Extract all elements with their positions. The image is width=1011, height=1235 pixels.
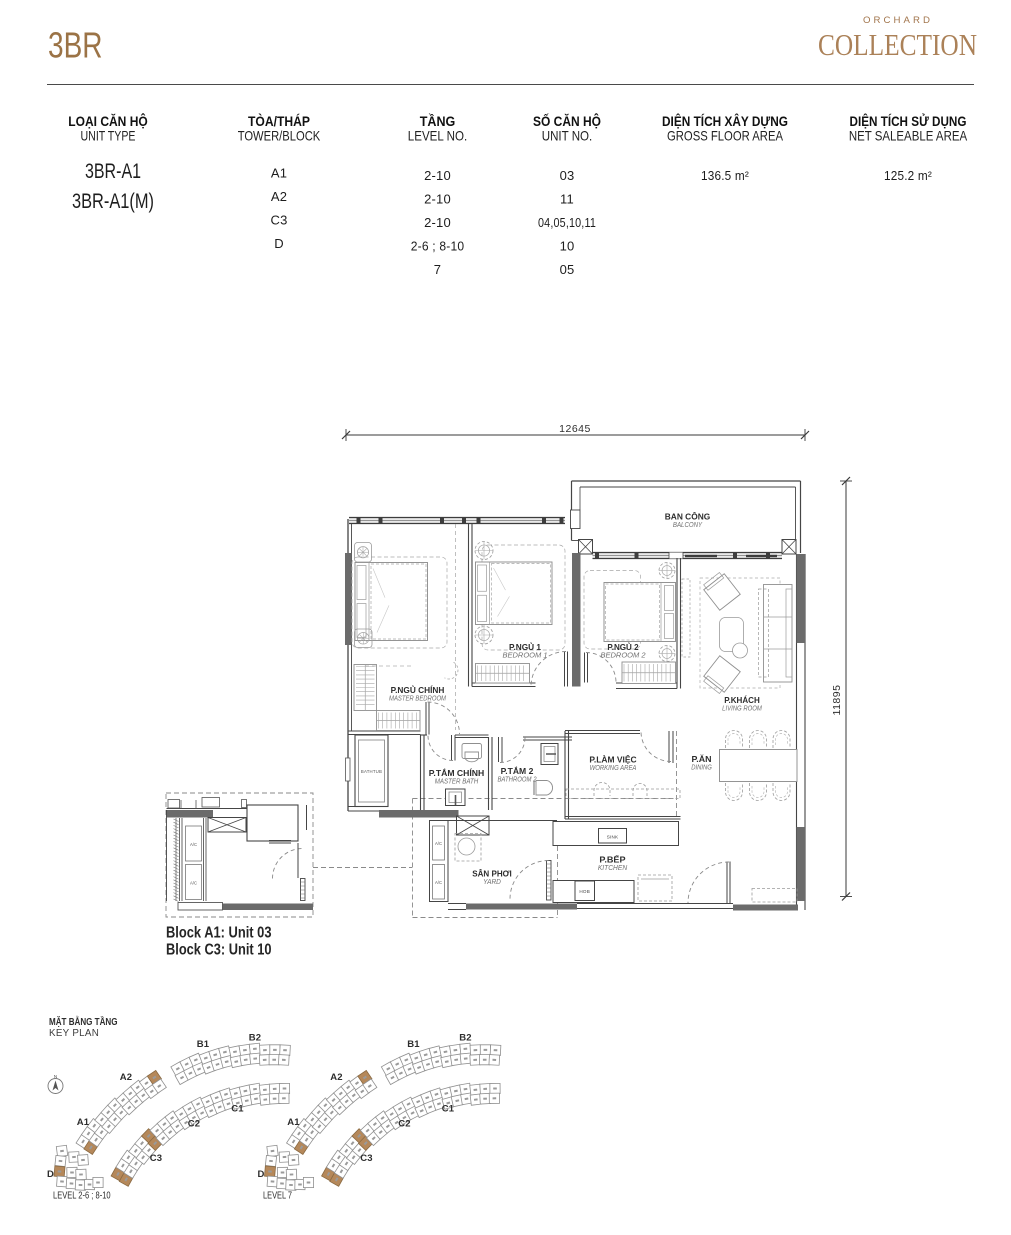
svg-text:2-10: 2-10 <box>424 192 451 207</box>
svg-text:COLLECTION: COLLECTION <box>818 28 977 62</box>
svg-text:Block C3: Unit 10: Block C3: Unit 10 <box>166 942 272 959</box>
svg-text:2-6 ; 8-10: 2-6 ; 8-10 <box>411 239 465 254</box>
svg-text:C3: C3 <box>360 1153 373 1164</box>
svg-text:BAN CÔNG: BAN CÔNG <box>665 511 711 522</box>
svg-text:SÂN PHƠI: SÂN PHƠI <box>472 868 512 879</box>
svg-text:SINK: SINK <box>607 835 619 840</box>
svg-text:KITCHEN: KITCHEN <box>598 865 627 872</box>
svg-text:B2: B2 <box>249 1033 262 1044</box>
svg-text:BATHROOM 2: BATHROOM 2 <box>497 777 536 784</box>
svg-text:11: 11 <box>560 192 574 207</box>
svg-text:C1: C1 <box>231 1104 244 1115</box>
svg-text:DIỆN TÍCH SỬ DỤNG: DIỆN TÍCH SỬ DỤNG <box>850 114 967 129</box>
svg-text:3BR-A1: 3BR-A1 <box>85 160 141 183</box>
svg-text:P.ĂN: P.ĂN <box>692 754 712 764</box>
svg-text:LEVEL 2-6 ; 8-10: LEVEL 2-6 ; 8-10 <box>53 1191 111 1202</box>
svg-text:YARD: YARD <box>483 879 501 886</box>
svg-text:A2: A2 <box>271 189 287 204</box>
svg-text:7: 7 <box>434 262 441 277</box>
svg-text:LEVEL NO.: LEVEL NO. <box>408 129 467 144</box>
svg-text:P.NGỦ CHÍNH: P.NGỦ CHÍNH <box>391 684 445 695</box>
svg-text:LOẠI CĂN HỘ: LOẠI CĂN HỘ <box>68 114 148 129</box>
svg-text:10: 10 <box>560 239 575 254</box>
svg-text:TẦNG: TẦNG <box>420 114 456 129</box>
svg-text:BATHTUB: BATHTUB <box>361 769 382 774</box>
svg-text:P.BẾP: P.BẾP <box>599 855 626 865</box>
svg-text:Block A1: Unit 03: Block A1: Unit 03 <box>166 925 272 942</box>
svg-text:DIỆN TÍCH XÂY DỰNG: DIỆN TÍCH XÂY DỰNG <box>662 114 788 129</box>
svg-text:P.NGỦ 2: P.NGỦ 2 <box>607 641 639 652</box>
svg-text:04,05,10,11: 04,05,10,11 <box>538 215 596 230</box>
svg-text:LEVEL 7: LEVEL 7 <box>263 1191 292 1202</box>
svg-text:C2: C2 <box>398 1119 411 1130</box>
svg-text:MASTER BATH: MASTER BATH <box>435 779 479 786</box>
svg-text:A2: A2 <box>120 1072 133 1083</box>
svg-text:C2: C2 <box>188 1119 201 1130</box>
svg-text:D: D <box>257 1169 264 1180</box>
svg-text:05: 05 <box>560 262 575 277</box>
svg-text:MẶT BẰNG TẦNG: MẶT BẰNG TẦNG <box>49 1017 118 1028</box>
svg-text:UNIT TYPE: UNIT TYPE <box>81 129 136 144</box>
svg-text:ORCHARD: ORCHARD <box>863 15 933 26</box>
svg-text:03: 03 <box>560 168 575 183</box>
svg-text:P.NGỦ 1: P.NGỦ 1 <box>509 641 541 652</box>
svg-text:A/C: A/C <box>435 880 442 885</box>
svg-text:GROSS FLOOR AREA: GROSS FLOOR AREA <box>667 129 784 144</box>
svg-text:NET SALEABLE AREA: NET SALEABLE AREA <box>849 129 968 144</box>
svg-text:A1: A1 <box>77 1117 90 1128</box>
svg-text:12645: 12645 <box>559 423 591 435</box>
svg-text:A/C: A/C <box>190 842 197 847</box>
svg-text:D: D <box>47 1169 54 1180</box>
svg-text:BEDROOM 1: BEDROOM 1 <box>503 653 548 660</box>
svg-text:LIVING ROOM: LIVING ROOM <box>722 706 762 713</box>
svg-text:BEDROOM 2: BEDROOM 2 <box>601 653 646 660</box>
svg-text:C3: C3 <box>270 213 287 228</box>
svg-text:BALCONY: BALCONY <box>673 522 703 529</box>
svg-text:N: N <box>54 1074 57 1079</box>
svg-text:DINING: DINING <box>691 765 712 772</box>
svg-text:A/C: A/C <box>435 841 442 846</box>
svg-text:3BR-A1(M): 3BR-A1(M) <box>72 190 154 213</box>
svg-text:P.TẮM CHÍNH: P.TẮM CHÍNH <box>429 767 484 778</box>
svg-text:P.LÀM VIỆC: P.LÀM VIỆC <box>589 754 636 765</box>
svg-text:WORKING AREA: WORKING AREA <box>590 765 637 772</box>
svg-text:A1: A1 <box>271 166 287 181</box>
svg-text:TÒA/THÁP: TÒA/THÁP <box>248 114 310 129</box>
svg-text:HOB: HOB <box>579 889 590 894</box>
svg-text:B1: B1 <box>197 1039 210 1050</box>
svg-text:3BR: 3BR <box>48 25 103 66</box>
svg-text:P.KHÁCH: P.KHÁCH <box>724 694 760 705</box>
svg-text:C3: C3 <box>150 1153 163 1164</box>
svg-text:P.TẮM 2: P.TẮM 2 <box>501 766 534 776</box>
svg-text:UNIT NO.: UNIT NO. <box>542 129 593 144</box>
svg-text:MASTER BEDROOM: MASTER BEDROOM <box>389 696 446 703</box>
svg-text:136.5 m²: 136.5 m² <box>701 168 749 183</box>
svg-text:TOWER/BLOCK: TOWER/BLOCK <box>238 129 321 144</box>
svg-text:A1: A1 <box>287 1117 300 1128</box>
svg-text:2-10: 2-10 <box>424 215 451 230</box>
svg-text:2-10: 2-10 <box>424 168 451 183</box>
svg-text:SỐ CĂN HỘ: SỐ CĂN HỘ <box>533 114 601 129</box>
svg-text:125.2 m²: 125.2 m² <box>884 168 932 183</box>
svg-text:B1: B1 <box>407 1039 420 1050</box>
svg-text:11895: 11895 <box>831 685 843 716</box>
svg-text:A/C: A/C <box>190 881 197 886</box>
svg-text:D: D <box>274 236 284 251</box>
svg-text:A2: A2 <box>330 1072 343 1083</box>
svg-text:KEY PLAN: KEY PLAN <box>49 1028 99 1039</box>
svg-text:B2: B2 <box>459 1033 472 1044</box>
svg-text:C1: C1 <box>442 1104 455 1115</box>
